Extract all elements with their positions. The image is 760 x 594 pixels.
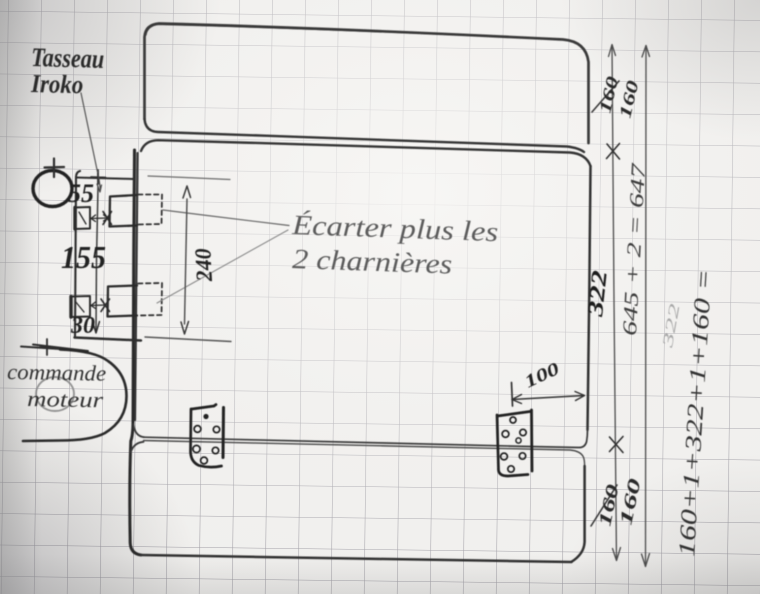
svg-text:Iroko: Iroko: [30, 69, 84, 99]
svg-text:55: 55: [68, 179, 94, 208]
svg-text:240: 240: [190, 247, 217, 283]
svg-text:155: 155: [61, 239, 106, 275]
svg-text:2 charnières: 2 charnières: [292, 244, 453, 281]
svg-text:30: 30: [70, 313, 95, 339]
svg-text:322: 322: [582, 269, 612, 319]
svg-text:commande: commande: [7, 359, 107, 386]
svg-text:moteur: moteur: [27, 386, 104, 412]
